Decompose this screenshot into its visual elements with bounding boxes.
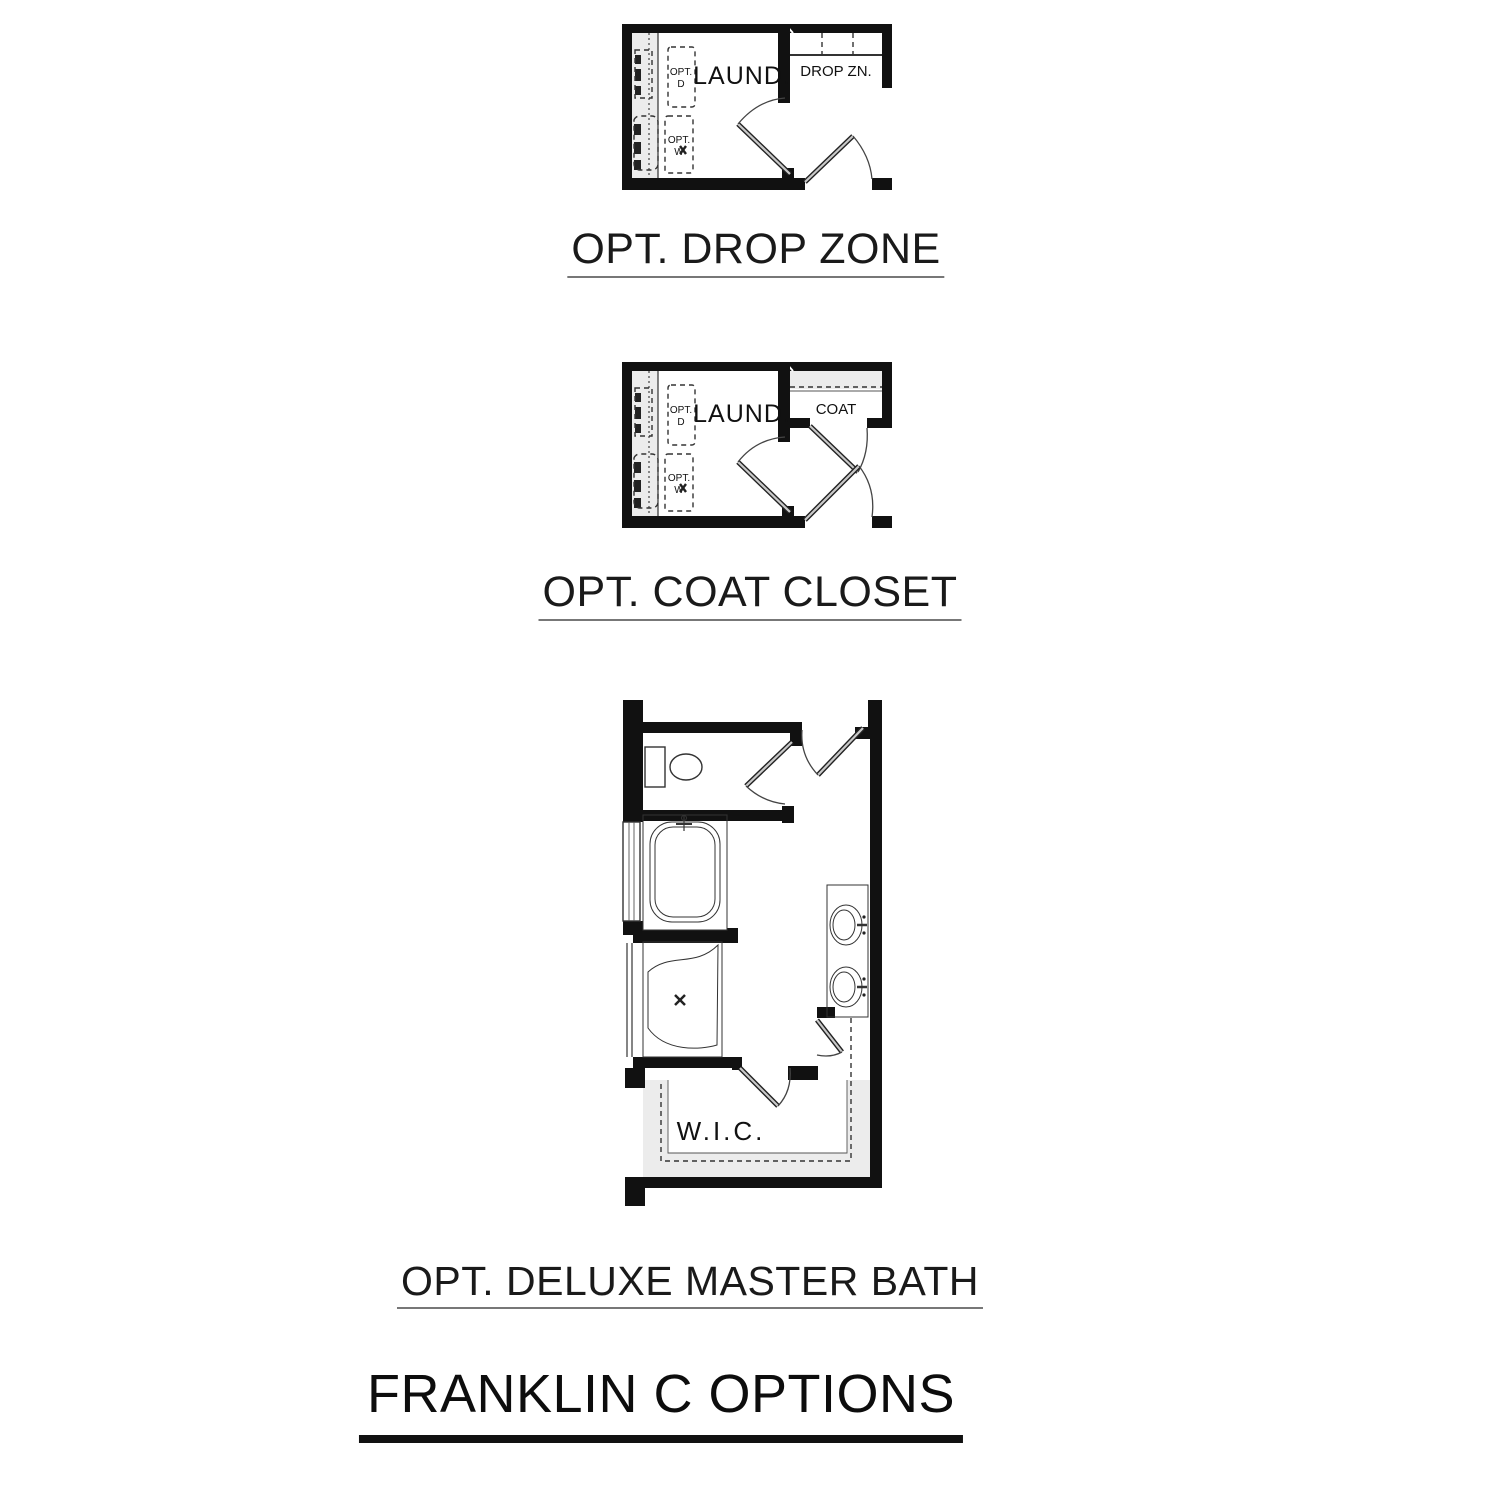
laundry-cabinet-strip [632, 371, 658, 516]
sheet-title: FRANKLIN C OPTIONS [359, 1363, 963, 1443]
wall [882, 362, 892, 428]
opt-dryer-label2: D [677, 417, 684, 428]
wall [872, 516, 892, 528]
window [623, 822, 640, 921]
plan-title-deluxe-master-bath: OPT. DELUXE MASTER BATH [397, 1258, 983, 1309]
opt-washer-label: OPT. [668, 135, 690, 146]
opt-washer-label: OPT. [668, 473, 690, 484]
wall [882, 24, 892, 88]
wall [633, 1057, 740, 1068]
wall [622, 24, 632, 190]
laundry-cabinet-strip [632, 33, 658, 178]
coat-closet-door [810, 426, 867, 472]
door-jamb [782, 806, 794, 823]
floor-plan-deluxe-master-bath: W.I.C. [620, 700, 886, 1206]
coat-closet-shelf [790, 371, 882, 389]
wall [817, 1007, 835, 1018]
linen-closet-door [817, 1020, 842, 1056]
wall [622, 178, 805, 190]
wall [622, 362, 632, 528]
wall [622, 516, 805, 528]
floor-plan-coat-closet: OPT. D OPT. W LAUND. COAT [622, 362, 892, 528]
laundry-door [738, 437, 790, 512]
plan-title-coat-closet: OPT. COAT CLOSET [539, 568, 962, 621]
wall [643, 722, 802, 733]
bathtub [643, 815, 727, 930]
wall [623, 700, 643, 822]
opt-dryer-label2: D [677, 79, 684, 90]
wic-door [740, 1068, 790, 1106]
opt-dryer-label: OPT. [670, 405, 692, 416]
plan-title-drop-zone: OPT. DROP ZONE [567, 225, 944, 278]
entry-door [805, 466, 873, 520]
double-vanity [827, 885, 868, 1017]
floor-plan-drop-zone: OPT. D OPT. W LAUND. DROP ZN. [622, 24, 892, 190]
wall [868, 700, 882, 733]
toilet-room-door [746, 742, 792, 804]
wall [870, 733, 882, 1188]
opt-dryer-label: OPT. [670, 67, 692, 78]
wall [872, 178, 892, 190]
closet-wall [790, 418, 810, 428]
floor-plan-sheet: OPT. D OPT. W LAUND. DROP ZN. OPT. DROP … [0, 0, 1500, 1500]
closet-wall [867, 418, 882, 428]
laundry-door [738, 98, 790, 174]
wall [622, 362, 892, 371]
coat-closet-label: COAT [816, 401, 857, 418]
toilet [645, 747, 702, 787]
entry-door [802, 728, 863, 775]
wall [727, 928, 738, 943]
wall [643, 1177, 882, 1188]
laundry-room-label: LAUND. [693, 62, 791, 90]
wall [625, 1068, 645, 1088]
wall [625, 1177, 645, 1206]
laundry-room-label: LAUND. [693, 400, 791, 428]
wic-label: W.I.C. [677, 1116, 766, 1146]
drop-zone-label: DROP ZN. [800, 63, 871, 80]
wall [622, 24, 892, 33]
wall [633, 930, 737, 943]
shower [643, 942, 722, 1057]
wall [788, 1066, 818, 1080]
entry-door [805, 136, 872, 182]
